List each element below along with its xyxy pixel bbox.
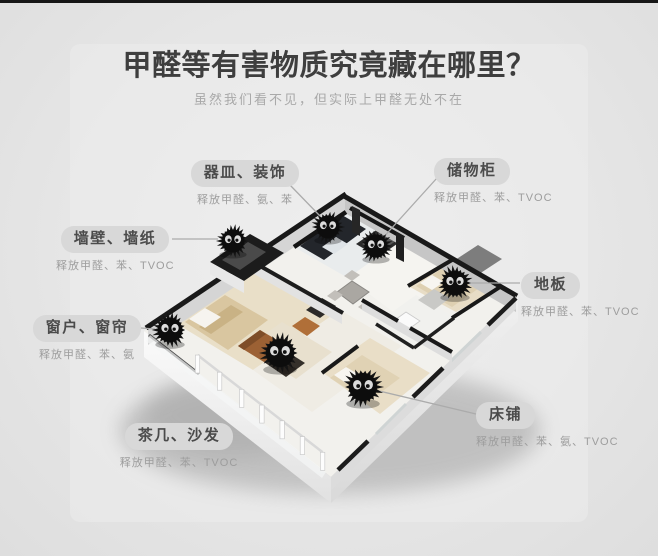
callout-windows-curtains-sub: 释放甲醛、苯、氨	[30, 346, 144, 362]
callout-tea-table-sofa-sub: 释放甲醛、苯、TVOC	[112, 454, 246, 470]
callout-tea-table-sofa-label: 茶几、沙发	[125, 423, 234, 450]
callout-floor: 地板 释放甲醛、苯、TVOC	[521, 272, 640, 319]
callout-vessels-decorations-label: 器皿、装饰	[191, 160, 300, 187]
title-block: 甲醛等有害物质究竟藏在哪里？ 虽然我们看不见，但实际上甲醛无处不在	[0, 48, 658, 108]
callout-bed-sub: 释放甲醛、苯、氨、TVOC	[476, 433, 619, 449]
page-subtitle: 虽然我们看不见，但实际上甲醛无处不在	[0, 89, 658, 108]
callout-vessels-decorations: 器皿、装饰 释放甲醛、氨、苯	[186, 160, 304, 207]
balcony-post	[239, 389, 243, 407]
balcony-post	[280, 421, 284, 439]
callout-walls-wallpaper-label: 墙壁、墙纸	[61, 226, 170, 253]
callout-bed-label: 床铺	[476, 402, 535, 429]
infographic-canvas: 甲醛等有害物质究竟藏在哪里？ 虽然我们看不见，但实际上甲醛无处不在	[0, 0, 658, 556]
callout-floor-label: 地板	[521, 272, 580, 299]
balcony-post	[260, 405, 264, 423]
balcony-post	[300, 437, 304, 455]
balcony-post	[320, 452, 324, 470]
callout-walls-wallpaper-sub: 释放甲醛、苯、TVOC	[56, 257, 174, 273]
callout-tea-table-sofa: 茶几、沙发 释放甲醛、苯、TVOC	[112, 423, 246, 470]
soot-sprite-walls-wallpaper	[216, 224, 248, 258]
balcony-post	[195, 355, 199, 373]
callout-bed: 床铺 释放甲醛、苯、氨、TVOC	[476, 402, 619, 449]
callout-windows-curtains-label: 窗户、窗帘	[33, 315, 142, 342]
callout-storage-cabinet-label: 储物柜	[434, 158, 510, 185]
callout-walls-wallpaper: 墙壁、墙纸 释放甲醛、苯、TVOC	[56, 226, 174, 273]
callout-storage-cabinet: 储物柜 释放甲醛、苯、TVOC	[434, 158, 553, 205]
callout-floor-sub: 释放甲醛、苯、TVOC	[521, 303, 640, 319]
balcony-post	[217, 372, 221, 390]
callout-storage-cabinet-sub: 释放甲醛、苯、TVOC	[434, 189, 553, 205]
callout-vessels-decorations-sub: 释放甲醛、氨、苯	[186, 191, 304, 207]
page-title: 甲醛等有害物质究竟藏在哪里？	[0, 48, 658, 84]
callout-windows-curtains: 窗户、窗帘 释放甲醛、苯、氨	[30, 315, 144, 362]
